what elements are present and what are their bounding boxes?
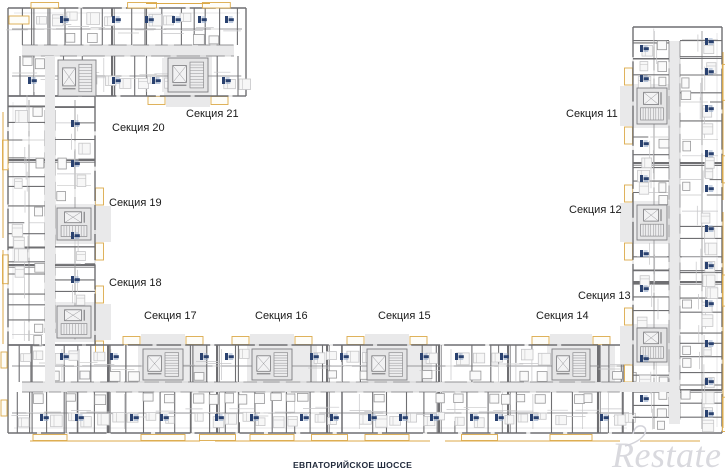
svg-text:Секция 19: Секция 19 — [109, 197, 162, 209]
svg-text:Секция 20: Секция 20 — [112, 122, 165, 134]
svg-text:Секция 18: Секция 18 — [109, 277, 162, 289]
svg-text:Секция 21: Секция 21 — [186, 108, 239, 120]
svg-text:Restate: Restate — [611, 435, 721, 470]
svg-text:ЕВПАТОРИЙСКОЕ ШОССЕ: ЕВПАТОРИЙСКОЕ ШОССЕ — [293, 459, 412, 470]
svg-text:Секция 11: Секция 11 — [566, 108, 618, 120]
svg-text:Секция 16: Секция 16 — [255, 310, 308, 322]
svg-text:Секция 15: Секция 15 — [378, 310, 431, 322]
svg-text:Секция 14: Секция 14 — [536, 310, 589, 322]
svg-text:Секция 17: Секция 17 — [144, 310, 197, 322]
svg-text:Секция 13: Секция 13 — [578, 290, 631, 302]
svg-text:Секция 12: Секция 12 — [569, 204, 622, 216]
